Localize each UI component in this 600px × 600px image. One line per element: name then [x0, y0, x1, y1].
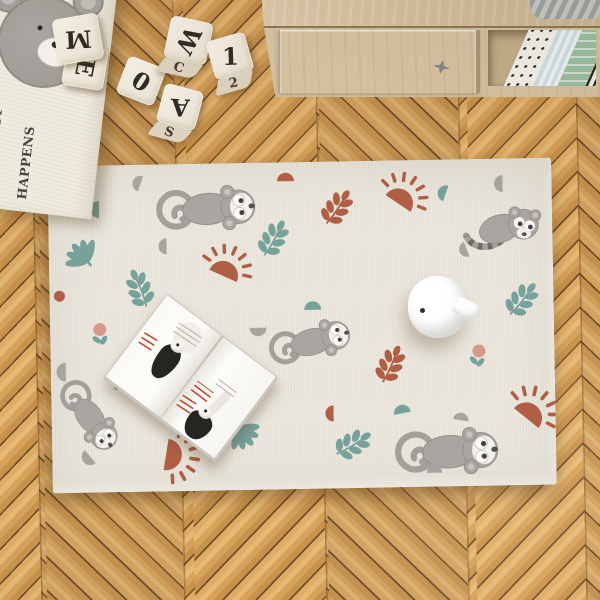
- gray-blanket: [530, 0, 600, 19]
- door-handle: [432, 58, 452, 75]
- half-circle-motif: [494, 175, 503, 192]
- half-sun-motif: [506, 376, 557, 435]
- half-circle-motif: [130, 174, 143, 192]
- half-circle-motif: [393, 403, 411, 415]
- flower-motif: [467, 343, 487, 368]
- half-circle-motif: [277, 173, 294, 182]
- monkey-motif: [397, 426, 499, 477]
- half-sun-motif: [377, 163, 436, 217]
- cabinet-front: [262, 28, 600, 97]
- page-red-scribble: [138, 332, 158, 351]
- letter-block: M: [51, 12, 104, 65]
- half-sun-motif: [200, 237, 259, 286]
- half-circle-motif: [325, 405, 333, 421]
- monkey-motif: [158, 184, 256, 235]
- half-circle-motif: [457, 242, 470, 259]
- leaf-sprig-motif: [330, 423, 377, 465]
- half-circle-motif: [78, 450, 96, 468]
- leaf-sprig-motif: [120, 266, 158, 312]
- cabinet-door: [278, 30, 480, 93]
- half-circle-motif: [435, 183, 448, 201]
- rug-motifs: [47, 158, 557, 494]
- half-circle-motif: [304, 301, 321, 310]
- banner-text-line: FUN STUFF: [0, 105, 5, 193]
- half-circle-motif: [453, 411, 469, 421]
- monkey-motif: [267, 314, 354, 370]
- banner-text-line: HAPPENS: [14, 125, 37, 200]
- leaf-sprig-motif: [371, 341, 411, 387]
- bunny-eye-icon: [420, 308, 425, 313]
- half-circle-motif: [56, 363, 66, 382]
- leaf-sprig-motif: [253, 215, 295, 262]
- flower-motif: [90, 322, 110, 347]
- lemur-motif: [465, 203, 541, 253]
- letter-block: W C: [163, 15, 214, 66]
- kids-room-photo: THIS IS WHERE THE FUN STUFF HAPPENS M E …: [0, 0, 600, 600]
- dot-motif: [54, 291, 65, 302]
- half-circle-motif: [250, 328, 267, 337]
- play-rug: [47, 158, 557, 494]
- open-shelf: [488, 30, 596, 86]
- block-face: M: [51, 12, 104, 65]
- leaf-sprig-motif: [316, 184, 359, 231]
- bunny-night-light: [408, 276, 468, 338]
- penguin-illustration: [179, 407, 217, 445]
- palm-leaf-motif: [58, 232, 107, 279]
- sideboard-cabinet: [262, 0, 600, 97]
- leaf-sprig-motif: [500, 276, 545, 323]
- half-circle-motif: [158, 238, 166, 254]
